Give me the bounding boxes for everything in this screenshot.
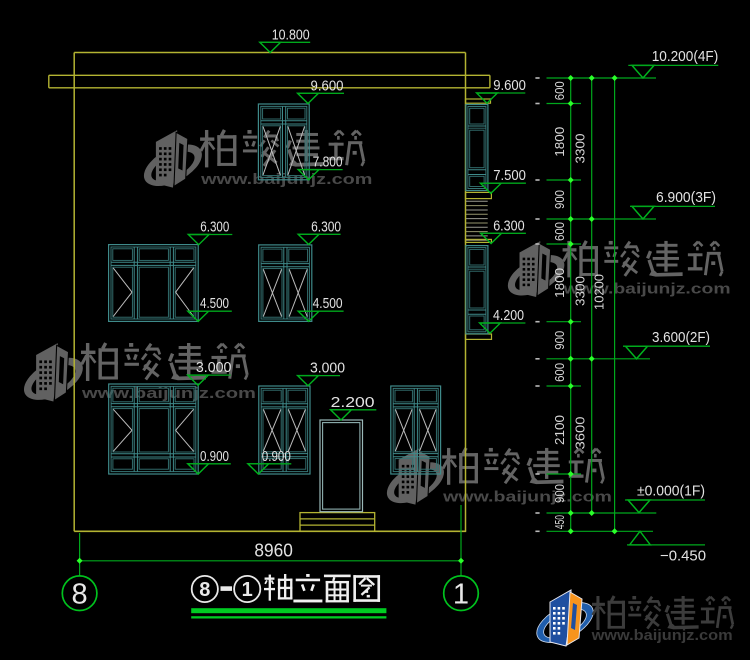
svg-text:900: 900 (552, 190, 567, 209)
svg-text:4.500: 4.500 (200, 296, 229, 312)
svg-text:1: 1 (242, 579, 253, 601)
svg-text:4.500: 4.500 (313, 296, 343, 312)
svg-text:3300: 3300 (573, 276, 588, 306)
svg-text:10.200(4F): 10.200(4F) (652, 48, 719, 65)
svg-text:9.600: 9.600 (311, 78, 344, 94)
svg-text:3.000: 3.000 (310, 361, 345, 377)
svg-text:600: 600 (552, 81, 567, 100)
svg-text:6.300: 6.300 (493, 218, 524, 234)
svg-text:3600: 3600 (573, 417, 588, 450)
svg-text:9.600: 9.600 (493, 78, 526, 94)
svg-text:600: 600 (552, 222, 567, 241)
svg-text:1800: 1800 (552, 268, 567, 298)
svg-text:900: 900 (552, 484, 567, 503)
svg-text:8: 8 (199, 579, 210, 601)
svg-text:10200: 10200 (592, 274, 607, 310)
svg-text:3300: 3300 (573, 134, 588, 164)
svg-text:1: 1 (453, 579, 469, 611)
svg-text:±0.000(1F): ±0.000(1F) (637, 483, 705, 500)
svg-text:2.200: 2.200 (331, 395, 375, 411)
svg-text:7.500: 7.500 (493, 168, 526, 184)
svg-text:8: 8 (72, 579, 88, 611)
svg-text:900: 900 (552, 331, 567, 350)
svg-text:6.300: 6.300 (311, 219, 341, 235)
svg-text:0.900: 0.900 (262, 449, 291, 465)
svg-text:450: 450 (552, 515, 567, 529)
svg-text:3.600(2F): 3.600(2F) (652, 329, 710, 346)
svg-text:6.300: 6.300 (200, 220, 229, 236)
svg-text:7.800: 7.800 (313, 155, 343, 171)
svg-text:2100: 2100 (552, 415, 567, 445)
svg-text:6.900(3F): 6.900(3F) (656, 189, 716, 206)
svg-text:−0.450: −0.450 (660, 548, 706, 565)
svg-text:www.baijunjz.com: www.baijunjz.com (590, 628, 732, 644)
svg-text:600: 600 (552, 363, 567, 382)
svg-text:1800: 1800 (552, 127, 567, 157)
svg-text:10.800: 10.800 (272, 27, 310, 43)
svg-text:3.000: 3.000 (196, 360, 232, 376)
svg-text:4.200: 4.200 (493, 308, 524, 324)
svg-text:www.baijunjz.com: www.baijunjz.com (442, 489, 612, 505)
svg-text:0.900: 0.900 (200, 449, 229, 465)
svg-text:8960: 8960 (254, 541, 292, 561)
